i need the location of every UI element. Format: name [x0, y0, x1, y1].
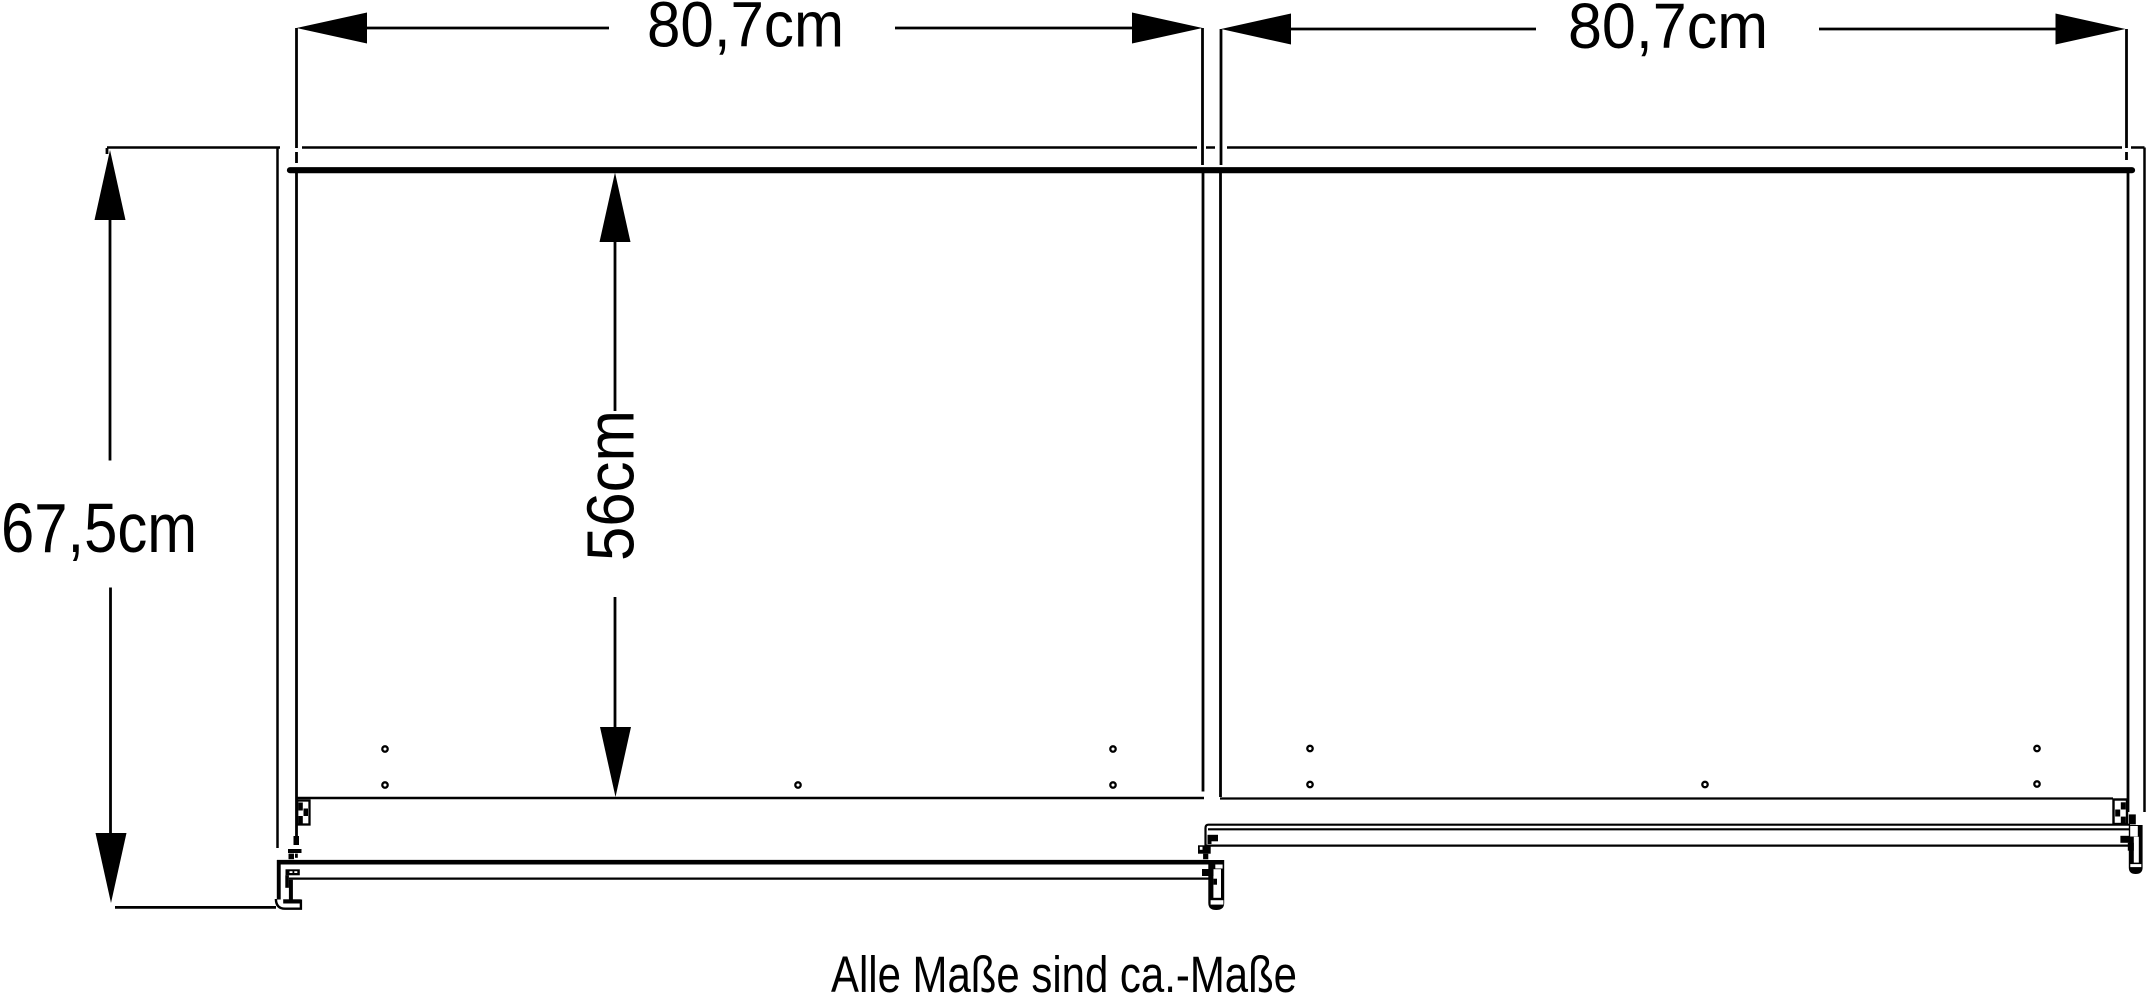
- svg-text:67,5cm: 67,5cm: [1, 489, 197, 567]
- svg-text:Alle Maße sind ca.-Maße: Alle Maße sind ca.-Maße: [831, 946, 1297, 1003]
- svg-text:80,7cm: 80,7cm: [647, 0, 844, 61]
- svg-text:80,7cm: 80,7cm: [1568, 0, 1768, 62]
- svg-text:56cm: 56cm: [574, 410, 649, 561]
